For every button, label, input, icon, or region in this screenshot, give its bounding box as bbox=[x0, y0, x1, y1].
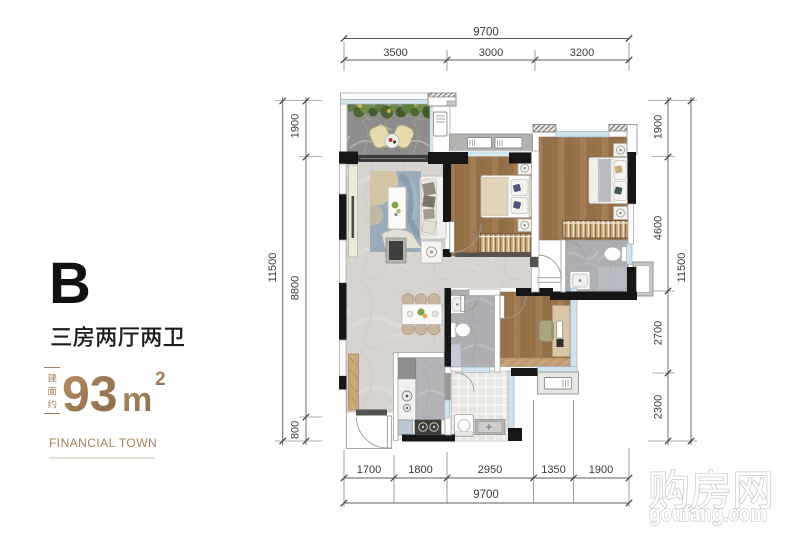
svg-text:2700: 2700 bbox=[653, 321, 665, 345]
svg-text:4600: 4600 bbox=[653, 216, 665, 240]
svg-text:3000: 3000 bbox=[479, 47, 503, 59]
svg-text:9700: 9700 bbox=[473, 27, 499, 39]
svg-text:1900: 1900 bbox=[653, 115, 665, 139]
svg-text:1350: 1350 bbox=[541, 464, 565, 476]
svg-text:1700: 1700 bbox=[357, 464, 381, 476]
svg-text:11500: 11500 bbox=[676, 253, 688, 283]
svg-text:FINANCIAL TOWN: FINANCIAL TOWN bbox=[49, 436, 157, 450]
svg-text:2: 2 bbox=[155, 369, 166, 390]
svg-text:93: 93 bbox=[62, 366, 118, 422]
svg-text:1900: 1900 bbox=[589, 464, 613, 476]
svg-text:2300: 2300 bbox=[653, 395, 665, 419]
svg-text:3200: 3200 bbox=[570, 47, 594, 59]
svg-text:goufang.com: goufang.com bbox=[649, 501, 767, 526]
svg-text:B: B bbox=[49, 251, 91, 316]
svg-text:11500: 11500 bbox=[267, 253, 279, 283]
svg-text:8800: 8800 bbox=[289, 276, 301, 300]
svg-text:1900: 1900 bbox=[289, 114, 301, 138]
svg-text:3500: 3500 bbox=[383, 47, 407, 59]
svg-text:m: m bbox=[122, 381, 152, 419]
svg-text:1800: 1800 bbox=[408, 464, 432, 476]
svg-text:2950: 2950 bbox=[478, 464, 502, 476]
svg-text:9700: 9700 bbox=[473, 489, 499, 501]
svg-text:800: 800 bbox=[289, 421, 301, 439]
